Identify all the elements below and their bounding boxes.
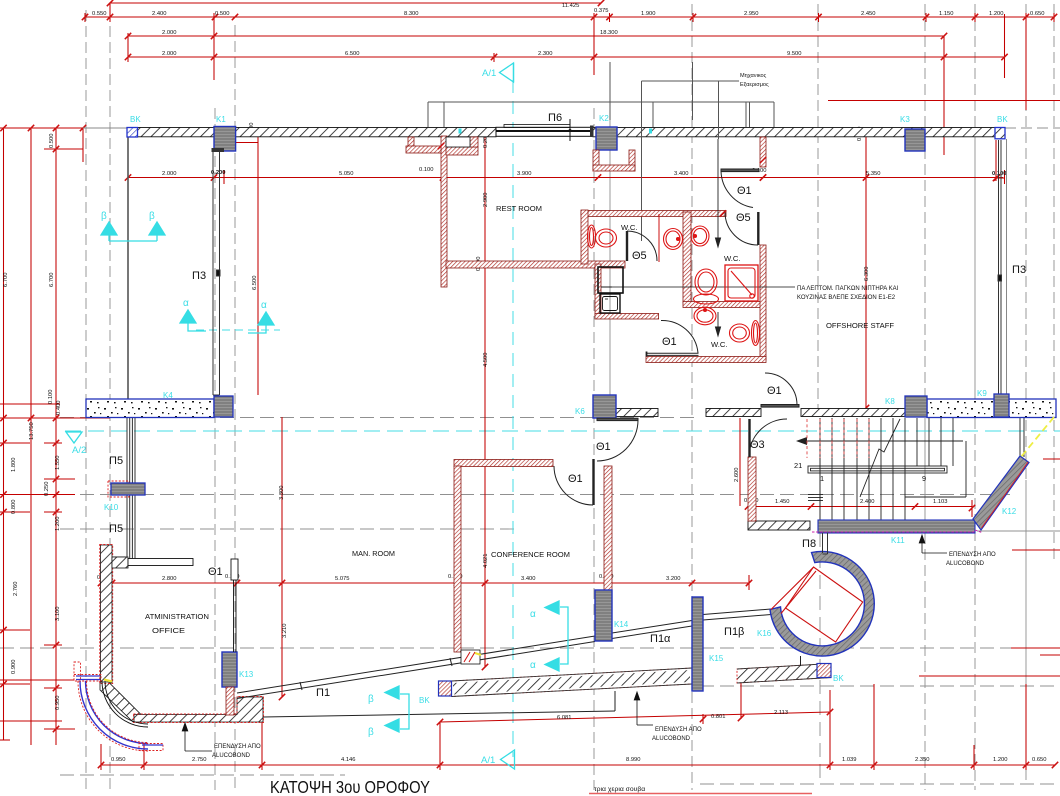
svg-text:8.990: 8.990 (626, 757, 641, 763)
svg-text:2.400: 2.400 (152, 11, 167, 17)
svg-text:21: 21 (794, 461, 802, 470)
svg-text:3.400: 3.400 (521, 576, 536, 582)
svg-text:K15: K15 (709, 654, 724, 663)
svg-text:ΚΑΤΟΨΗ 3ου ΟΡΟΦΟΥ: ΚΑΤΟΨΗ 3ου ΟΡΟΦΟΥ (270, 777, 430, 796)
svg-text:2.000: 2.000 (162, 171, 177, 177)
svg-text:ΚΟΥΖΙΝΑΣ ΒΛΕΠΕ ΣΧΕΔΙΟΝ E1-E2: ΚΟΥΖΙΝΑΣ ΒΛΕΠΕ ΣΧΕΔΙΟΝ E1-E2 (797, 295, 896, 301)
svg-text:0.250: 0.250 (44, 481, 50, 496)
svg-text:1.200: 1.200 (989, 11, 1004, 17)
svg-text:α: α (530, 609, 536, 620)
svg-text:Θ5: Θ5 (736, 212, 751, 224)
svg-text:2.000: 2.000 (162, 51, 177, 57)
svg-text:4.021: 4.021 (483, 553, 489, 568)
svg-text:3.210: 3.210 (282, 623, 288, 638)
svg-text:Θ1: Θ1 (662, 336, 677, 348)
svg-text:5.350: 5.350 (866, 171, 881, 177)
svg-text:α: α (261, 300, 267, 311)
svg-text:K4: K4 (163, 391, 173, 400)
svg-text:τρια χερια σουβα: τρια χερια σουβα (594, 786, 645, 793)
svg-text:β: β (149, 211, 155, 222)
svg-text:K12: K12 (1002, 507, 1017, 516)
svg-text:0.950: 0.950 (55, 695, 61, 710)
svg-text:1.450: 1.450 (775, 499, 790, 505)
svg-text:2.600: 2.600 (734, 467, 740, 482)
svg-text:3.900: 3.900 (517, 171, 532, 177)
svg-text:K1: K1 (216, 115, 226, 124)
svg-text:K11: K11 (891, 536, 905, 545)
svg-text:Θ1: Θ1 (596, 441, 611, 453)
svg-text:0.100: 0.100 (419, 167, 434, 173)
svg-text:BK: BK (997, 115, 1008, 124)
svg-text:1.900: 1.900 (641, 11, 656, 17)
svg-text:2.400: 2.400 (860, 499, 875, 505)
svg-text:1.550: 1.550 (55, 455, 61, 470)
svg-text:Π3: Π3 (192, 270, 206, 282)
svg-text:6.500: 6.500 (252, 275, 258, 290)
svg-text:β: β (368, 694, 374, 705)
svg-text:Π3: Π3 (1012, 264, 1026, 276)
svg-text:Π8: Π8 (802, 538, 816, 550)
svg-text:Θ1: Θ1 (767, 385, 782, 397)
svg-text:2.113: 2.113 (774, 710, 788, 716)
svg-text:ΕΠΕΝΔΥΣΗ ΑΠΟ: ΕΠΕΝΔΥΣΗ ΑΠΟ (949, 552, 996, 558)
svg-text:BK: BK (833, 674, 844, 683)
svg-text:W.C.: W.C. (724, 254, 740, 263)
svg-text:8.300: 8.300 (404, 11, 419, 17)
svg-text:Εξαερισμος: Εξαερισμος (740, 82, 769, 88)
svg-text:9.500: 9.500 (787, 51, 802, 57)
svg-text:A/1: A/1 (482, 68, 496, 79)
svg-text:2.350: 2.350 (915, 757, 930, 763)
svg-text:K8: K8 (885, 397, 895, 406)
svg-text:α: α (530, 660, 536, 671)
svg-text:3.100: 3.100 (55, 606, 61, 621)
svg-text:3.400: 3.400 (674, 171, 689, 177)
svg-text:K16: K16 (757, 629, 772, 638)
svg-text:6.500: 6.500 (345, 51, 360, 57)
svg-text:Π1β: Π1β (724, 626, 744, 638)
svg-text:W.C.: W.C. (711, 340, 727, 349)
svg-text:Θ5: Θ5 (632, 250, 647, 262)
svg-text:1: 1 (820, 474, 824, 483)
svg-text:A/1: A/1 (481, 755, 495, 766)
svg-text:2.750: 2.750 (192, 757, 207, 763)
svg-text:0.550: 0.550 (92, 11, 107, 17)
svg-text:0.100: 0.100 (48, 389, 54, 404)
svg-text:ALUCOBOND: ALUCOBOND (652, 736, 691, 742)
svg-text:K9: K9 (977, 389, 987, 398)
svg-text:Μηχανικος: Μηχανικος (740, 73, 767, 79)
svg-text:0.400: 0.400 (56, 400, 62, 415)
svg-text:1.039: 1.039 (842, 757, 857, 763)
svg-text:β: β (101, 211, 107, 222)
svg-text:OFFSHORE STAFF: OFFSHORE STAFF (826, 321, 894, 330)
svg-text:0.900: 0.900 (11, 659, 17, 674)
svg-text:11.425: 11.425 (562, 3, 579, 9)
svg-text:4.146: 4.146 (341, 757, 356, 763)
svg-text:6.700: 6.700 (3, 272, 9, 287)
svg-text:K14: K14 (614, 620, 629, 629)
svg-text:0.500: 0.500 (49, 133, 55, 148)
svg-text:0.650: 0.650 (1032, 757, 1047, 763)
svg-text:1.150: 1.150 (939, 11, 954, 17)
svg-text:6.700: 6.700 (49, 272, 55, 287)
svg-text:2.760: 2.760 (13, 581, 19, 596)
svg-text:ALUCOBOND: ALUCOBOND (946, 561, 985, 567)
svg-text:1.103: 1.103 (933, 499, 948, 505)
svg-text:CONFERENCE ROOM: CONFERENCE ROOM (491, 550, 570, 559)
svg-text:6.300: 6.300 (864, 266, 870, 281)
svg-text:3.300: 3.300 (279, 485, 285, 500)
svg-text:2.800: 2.800 (162, 576, 177, 582)
svg-text:BK: BK (419, 696, 430, 705)
svg-text:2.300: 2.300 (538, 51, 553, 57)
svg-text:ALUCOBOND: ALUCOBOND (212, 753, 251, 759)
svg-text:Θ1: Θ1 (568, 473, 583, 485)
svg-text:1.200: 1.200 (993, 757, 1008, 763)
svg-text:6.081: 6.081 (557, 715, 572, 721)
svg-text:9: 9 (922, 474, 926, 483)
svg-text:2.900: 2.900 (483, 192, 489, 207)
svg-text:ΠΑ ΛΕΠΤΟΜ. ΠΑΓΚΩΝ ΝΙΠΤΗΡΑ ΚΑΙ: ΠΑ ΛΕΠΤΟΜ. ΠΑΓΚΩΝ ΝΙΠΤΗΡΑ ΚΑΙ (797, 286, 899, 292)
svg-text:0.950: 0.950 (111, 757, 126, 763)
svg-text:α: α (183, 298, 189, 309)
svg-text:0.500: 0.500 (215, 11, 230, 17)
svg-text:0.800: 0.800 (11, 499, 17, 514)
svg-text:BK: BK (130, 115, 141, 124)
svg-text:REST ROOM: REST ROOM (496, 204, 542, 213)
svg-text:2.000: 2.000 (162, 30, 177, 36)
svg-text:Θ1: Θ1 (737, 185, 752, 197)
svg-text:0.100: 0.100 (992, 171, 1007, 177)
svg-text:Π6: Π6 (548, 112, 562, 124)
svg-text:K2: K2 (599, 114, 609, 123)
svg-text:A/2: A/2 (72, 445, 86, 456)
svg-text:K3: K3 (900, 115, 910, 124)
svg-text:0.375: 0.375 (594, 8, 609, 14)
svg-text:ΕΠΕΝΔΥΣΗ ΑΠΟ: ΕΠΕΝΔΥΣΗ ΑΠΟ (655, 727, 702, 733)
svg-text:0.801: 0.801 (711, 714, 726, 720)
svg-text:0.650: 0.650 (1030, 11, 1045, 17)
svg-text:5.050: 5.050 (339, 171, 354, 177)
svg-text:1.800: 1.800 (11, 457, 17, 472)
svg-text:K6: K6 (575, 407, 585, 416)
svg-text:Π5: Π5 (109, 523, 123, 535)
svg-text:18.300: 18.300 (600, 30, 618, 36)
svg-text:β: β (368, 727, 374, 738)
svg-text:MAN. ROOM: MAN. ROOM (352, 549, 395, 558)
svg-text:5.075: 5.075 (335, 576, 350, 582)
svg-text:3.200: 3.200 (666, 576, 681, 582)
svg-text:2.950: 2.950 (744, 11, 759, 17)
svg-text:K10: K10 (104, 503, 119, 512)
svg-text:Π1α: Π1α (650, 633, 671, 645)
svg-text:2.450: 2.450 (861, 11, 876, 17)
svg-text:1.200: 1.200 (55, 516, 61, 531)
svg-text:13.750: 13.750 (29, 422, 35, 440)
svg-text:K13: K13 (239, 670, 254, 679)
svg-text:Π5: Π5 (109, 455, 123, 467)
svg-text:ATMINISTRATION: ATMINISTRATION (145, 612, 209, 621)
svg-text:4.500: 4.500 (483, 352, 489, 367)
svg-text:Θ1: Θ1 (208, 566, 223, 578)
svg-text:ΕΠΕΝΔΥΣΗ ΑΠΟ: ΕΠΕΝΔΥΣΗ ΑΠΟ (214, 744, 261, 750)
svg-text:Π1: Π1 (316, 687, 330, 699)
svg-text:OFFICE: OFFICE (152, 626, 185, 635)
